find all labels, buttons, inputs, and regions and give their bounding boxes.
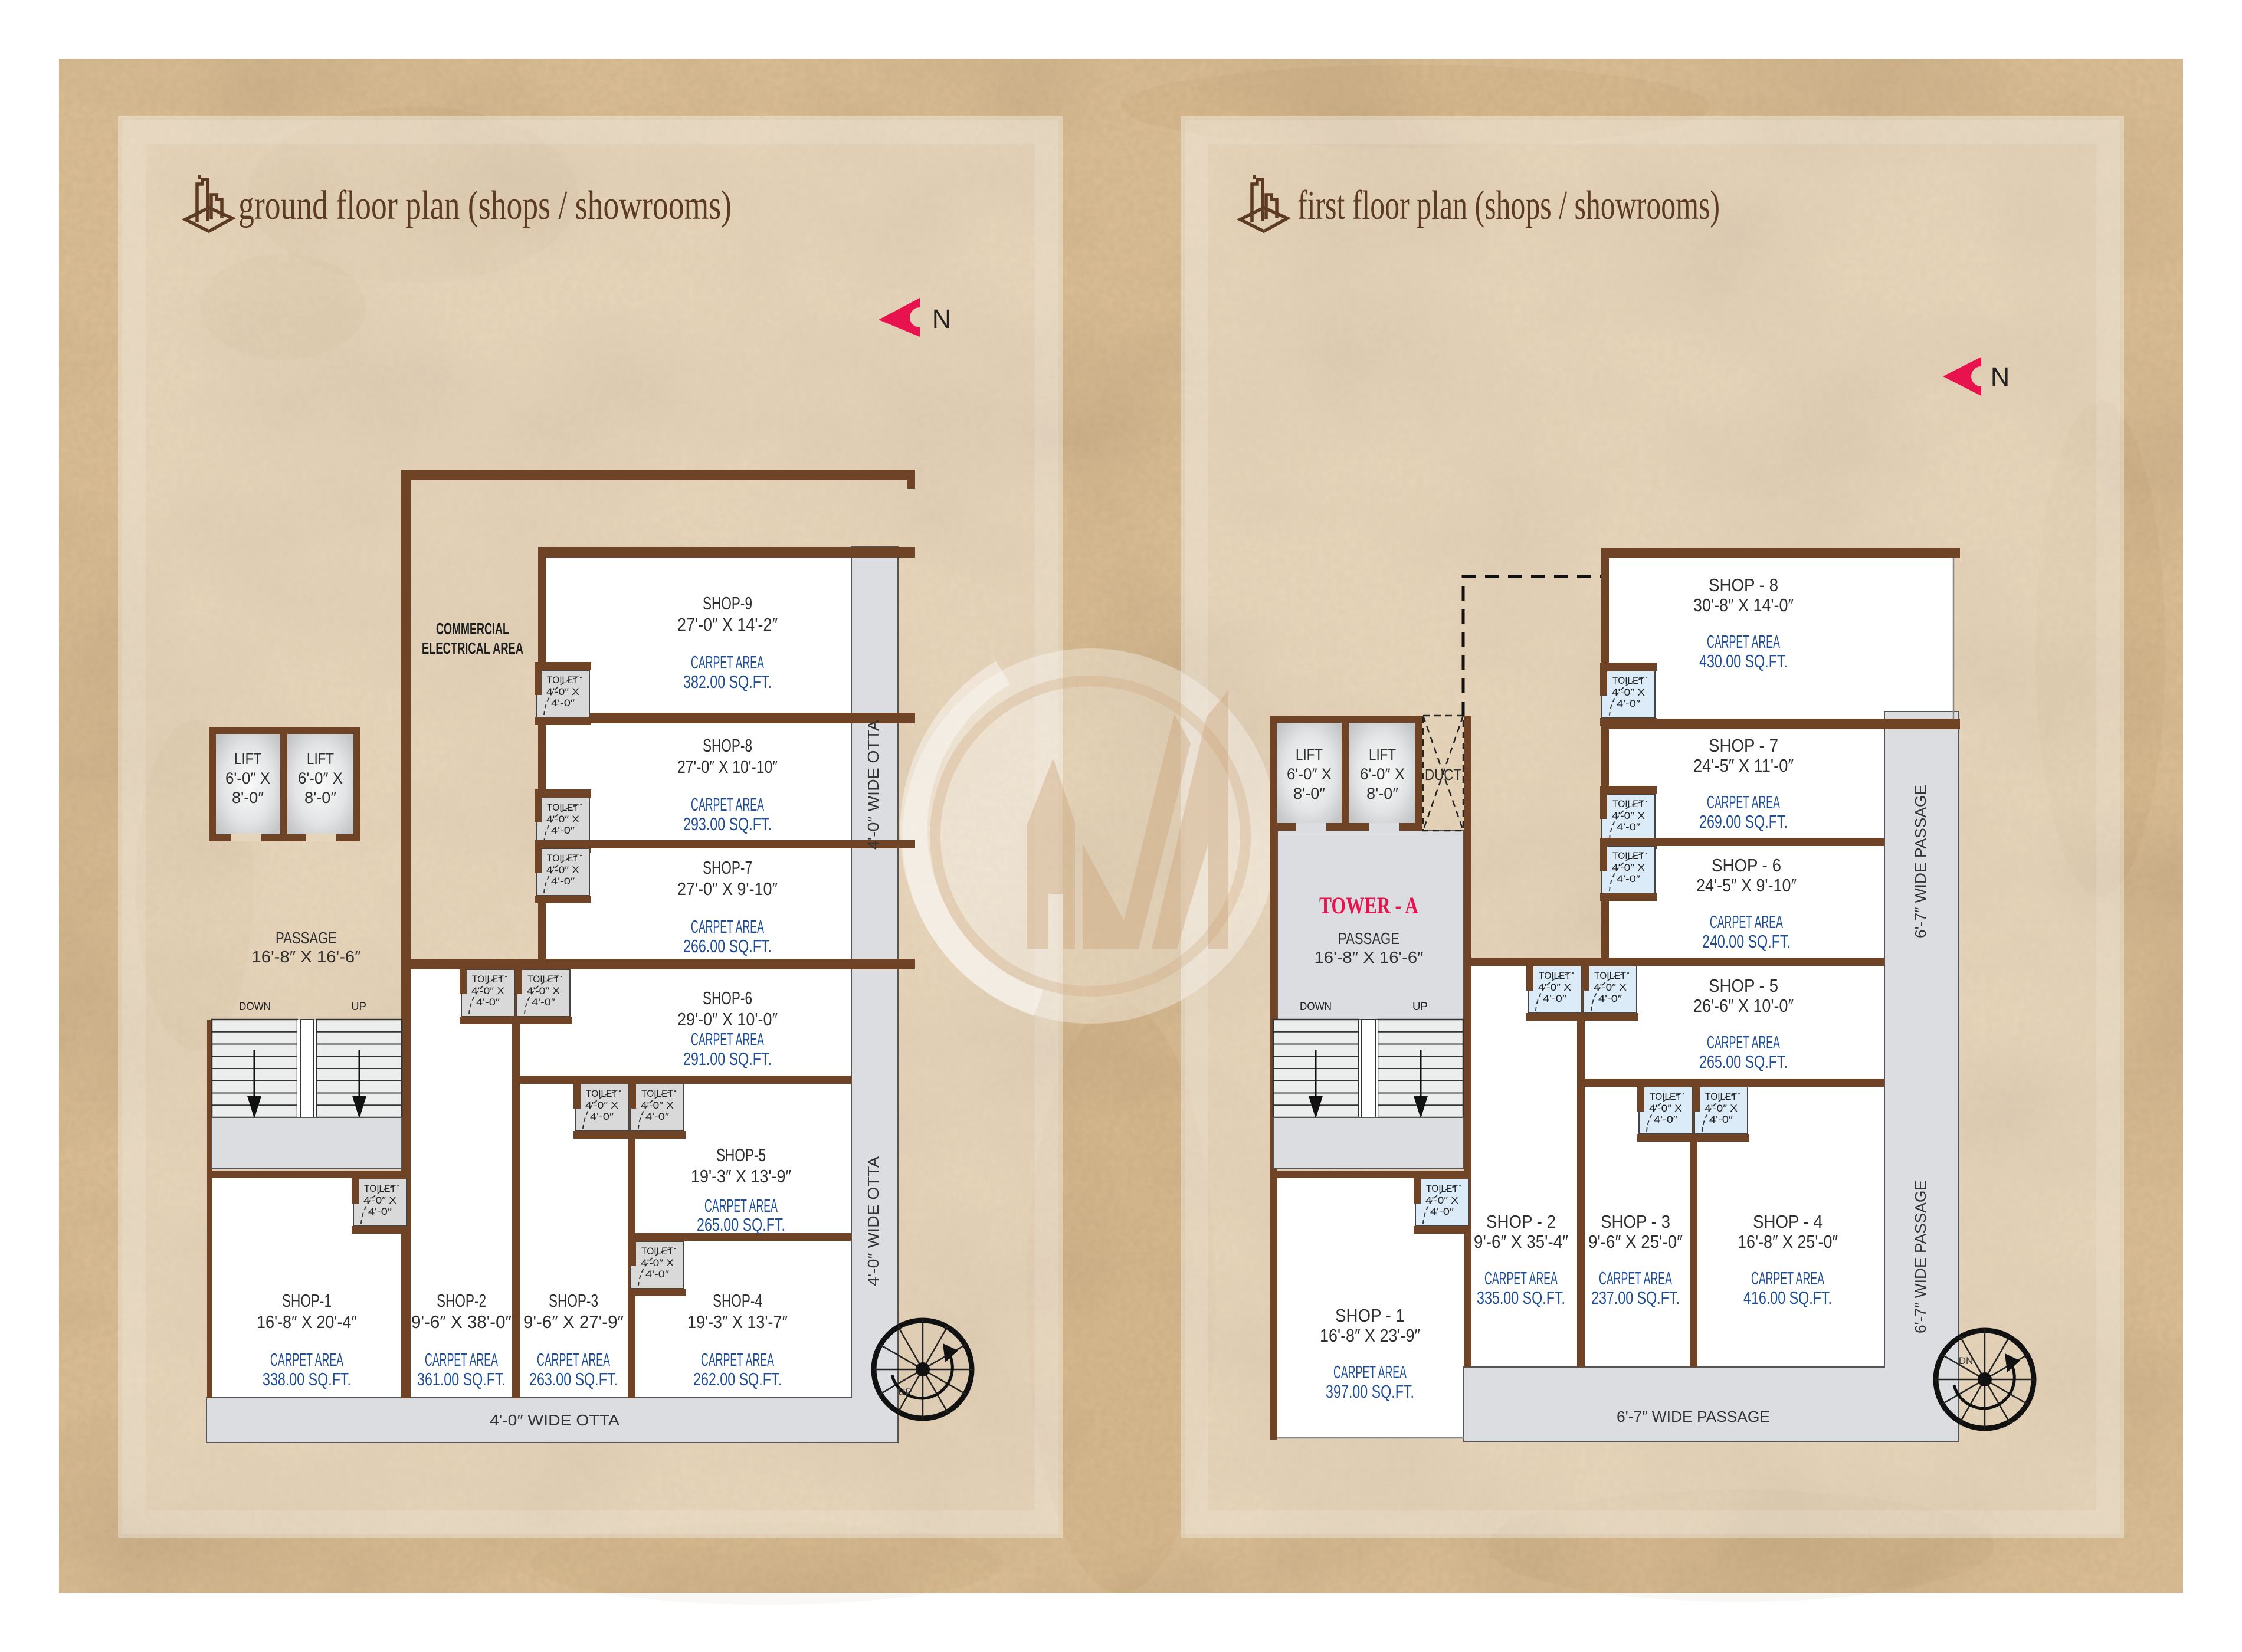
svg-text:SHOP - 5: SHOP - 5 <box>1709 975 1778 996</box>
svg-text:16'-8″ X 25'-0″: 16'-8″ X 25'-0″ <box>1738 1231 1838 1252</box>
svg-text:UP: UP <box>351 1001 366 1013</box>
svg-text:8'-0″: 8'-0″ <box>1293 785 1325 802</box>
svg-text:LIFT: LIFT <box>1296 746 1323 763</box>
svg-text:CARPET AREA: CARPET AREA <box>537 1349 610 1370</box>
svg-text:COMMERCIAL: COMMERCIAL <box>436 619 509 638</box>
svg-text:SHOP-4: SHOP-4 <box>713 1290 762 1311</box>
svg-text:SHOP - 7: SHOP - 7 <box>1709 735 1778 756</box>
svg-text:24'-5″ X 9'-10″: 24'-5″ X 9'-10″ <box>1696 875 1797 896</box>
svg-text:27'-0″ X 14'-2″: 27'-0″ X 14'-2″ <box>677 614 778 635</box>
svg-text:9'-6″ X 38'-0″: 9'-6″ X 38'-0″ <box>411 1312 512 1332</box>
svg-text:26'-6″ X 10'-0″: 26'-6″ X 10'-0″ <box>1693 995 1794 1016</box>
svg-text:361.00 SQ.FT.: 361.00 SQ.FT. <box>417 1369 506 1389</box>
svg-text:9'-6″ X 27'-9″: 9'-6″ X 27'-9″ <box>523 1312 624 1332</box>
svg-text:4'-0″ WIDE OTTA: 4'-0″ WIDE OTTA <box>864 1156 882 1286</box>
svg-text:SHOP-7: SHOP-7 <box>703 857 752 878</box>
svg-text:4'-0″ WIDE OTTA: 4'-0″ WIDE OTTA <box>490 1411 620 1429</box>
svg-text:SHOP-9: SHOP-9 <box>703 593 752 614</box>
svg-text:6'-0″ X: 6'-0″ X <box>1287 765 1332 783</box>
svg-text:269.00 SQ.FT.: 269.00 SQ.FT. <box>1699 811 1788 832</box>
svg-text:4'-0″ WIDE OTTA: 4'-0″ WIDE OTTA <box>864 719 882 850</box>
svg-text:9'-6″ X 35'-4″: 9'-6″ X 35'-4″ <box>1474 1231 1568 1252</box>
svg-text:16'-8″ X 16'-6″: 16'-8″ X 16'-6″ <box>1315 948 1424 966</box>
svg-text:CARPET AREA: CARPET AREA <box>1333 1362 1407 1382</box>
svg-text:27'-0″ X 9'-10″: 27'-0″ X 9'-10″ <box>677 879 778 899</box>
svg-text:LIFT: LIFT <box>234 750 261 768</box>
svg-text:382.00 SQ.FT.: 382.00 SQ.FT. <box>683 671 772 692</box>
svg-text:9'-6″ X 25'-0″: 9'-6″ X 25'-0″ <box>1588 1231 1683 1252</box>
svg-text:CARPET AREA: CARPET AREA <box>701 1349 774 1370</box>
svg-text:8'-0″: 8'-0″ <box>232 789 264 807</box>
svg-text:416.00 SQ.FT.: 416.00 SQ.FT. <box>1743 1287 1832 1308</box>
svg-text:UP: UP <box>1412 1001 1428 1013</box>
svg-text:SHOP - 1: SHOP - 1 <box>1335 1305 1405 1326</box>
svg-text:6'-7″ WIDE PASSAGE: 6'-7″ WIDE PASSAGE <box>1617 1408 1770 1425</box>
svg-text:16'-8″ X 20'-4″: 16'-8″ X 20'-4″ <box>257 1312 357 1332</box>
svg-text:29'-0″ X 10'-0″: 29'-0″ X 10'-0″ <box>677 1009 778 1030</box>
svg-text:24'-5″ X 11'-0″: 24'-5″ X 11'-0″ <box>1693 755 1794 776</box>
svg-text:397.00 SQ.FT.: 397.00 SQ.FT. <box>1326 1381 1414 1402</box>
svg-text:6'-7″ WIDE PASSAGE: 6'-7″ WIDE PASSAGE <box>1912 785 1929 938</box>
svg-text:6'-7″ WIDE PASSAGE: 6'-7″ WIDE PASSAGE <box>1912 1180 1929 1333</box>
svg-text:CARPET AREA: CARPET AREA <box>425 1349 498 1370</box>
svg-text:ground floor plan (shops / sho: ground floor plan (shops / showrooms) <box>238 183 732 228</box>
svg-text:CARPET AREA: CARPET AREA <box>1751 1268 1824 1289</box>
svg-text:CARPET AREA: CARPET AREA <box>1707 631 1780 652</box>
svg-text:19'-3″ X 13'-7″: 19'-3″ X 13'-7″ <box>687 1312 788 1332</box>
svg-text:237.00 SQ.FT.: 237.00 SQ.FT. <box>1591 1287 1680 1308</box>
svg-text:CARPET AREA: CARPET AREA <box>1707 1032 1780 1053</box>
svg-text:27'-0″ X 10'-10″: 27'-0″ X 10'-10″ <box>677 756 778 777</box>
svg-text:266.00 SQ.FT.: 266.00 SQ.FT. <box>683 936 772 956</box>
svg-text:DUCT: DUCT <box>1425 766 1461 784</box>
svg-text:TOWER - A: TOWER - A <box>1319 892 1418 919</box>
svg-text:30'-8″ X 14'-0″: 30'-8″ X 14'-0″ <box>1693 595 1794 615</box>
svg-text:N: N <box>932 304 952 334</box>
svg-text:SHOP - 6: SHOP - 6 <box>1712 855 1781 876</box>
svg-text:6'-0″ X: 6'-0″ X <box>225 769 270 787</box>
svg-text:CARPET AREA: CARPET AREA <box>1484 1268 1558 1289</box>
svg-text:DN: DN <box>1959 1355 1974 1366</box>
svg-text:CARPET AREA: CARPET AREA <box>704 1195 778 1216</box>
svg-text:SHOP-5: SHOP-5 <box>716 1145 766 1165</box>
svg-text:19'-3″ X 13'-9″: 19'-3″ X 13'-9″ <box>691 1166 791 1186</box>
svg-text:SHOP-6: SHOP-6 <box>703 988 752 1008</box>
svg-text:265.00 SQ.FT.: 265.00 SQ.FT. <box>697 1214 785 1235</box>
svg-text:CARPET AREA: CARPET AREA <box>270 1349 343 1370</box>
svg-text:240.00 SQ.FT.: 240.00 SQ.FT. <box>1702 931 1791 952</box>
svg-text:CARPET AREA: CARPET AREA <box>691 794 764 815</box>
svg-text:16'-8″ X 23'-9″: 16'-8″ X 23'-9″ <box>1320 1325 1420 1346</box>
svg-text:first floor plan (shops / show: first floor plan (shops / showrooms) <box>1297 183 1720 228</box>
svg-text:SHOP - 2: SHOP - 2 <box>1486 1211 1556 1232</box>
svg-text:N: N <box>1991 362 2010 392</box>
svg-text:CARPET AREA: CARPET AREA <box>691 652 764 673</box>
svg-text:CARPET AREA: CARPET AREA <box>691 916 764 937</box>
svg-text:6'-0″ X: 6'-0″ X <box>1360 765 1405 783</box>
svg-text:265.00 SQ.FT.: 265.00 SQ.FT. <box>1699 1051 1788 1072</box>
svg-text:291.00 SQ.FT.: 291.00 SQ.FT. <box>683 1048 772 1069</box>
svg-text:SHOP - 4: SHOP - 4 <box>1753 1211 1823 1232</box>
svg-text:8'-0″: 8'-0″ <box>1366 785 1398 802</box>
svg-text:338.00 SQ.FT.: 338.00 SQ.FT. <box>263 1369 351 1389</box>
svg-text:8'-0″: 8'-0″ <box>304 789 336 807</box>
svg-text:SHOP-3: SHOP-3 <box>549 1290 598 1311</box>
svg-text:LIFT: LIFT <box>307 750 334 768</box>
svg-text:SHOP-8: SHOP-8 <box>703 735 752 756</box>
svg-text:335.00 SQ.FT.: 335.00 SQ.FT. <box>1477 1287 1565 1308</box>
svg-text:PASSAGE: PASSAGE <box>276 929 337 947</box>
svg-text:SHOP-1: SHOP-1 <box>282 1290 332 1311</box>
svg-text:CARPET AREA: CARPET AREA <box>691 1029 764 1050</box>
svg-text:SHOP - 3: SHOP - 3 <box>1601 1211 1670 1232</box>
svg-text:262.00 SQ.FT.: 262.00 SQ.FT. <box>693 1369 782 1389</box>
svg-text:LIFT: LIFT <box>1369 746 1396 763</box>
svg-text:16'-8″ X 16'-6″: 16'-8″ X 16'-6″ <box>252 948 361 966</box>
svg-text:263.00 SQ.FT.: 263.00 SQ.FT. <box>529 1369 618 1389</box>
svg-text:CARPET AREA: CARPET AREA <box>1707 792 1780 812</box>
svg-text:430.00 SQ.FT.: 430.00 SQ.FT. <box>1699 651 1788 671</box>
svg-text:CARPET AREA: CARPET AREA <box>1710 912 1783 932</box>
svg-text:SHOP - 8: SHOP - 8 <box>1709 575 1778 595</box>
svg-text:ELECTRICAL AREA: ELECTRICAL AREA <box>422 639 523 657</box>
svg-text:PASSAGE: PASSAGE <box>1338 929 1399 948</box>
svg-text:293.00 SQ.FT.: 293.00 SQ.FT. <box>683 814 772 834</box>
svg-text:CARPET AREA: CARPET AREA <box>1599 1268 1672 1289</box>
svg-text:DOWN: DOWN <box>239 1001 271 1013</box>
svg-text:UP: UP <box>898 1386 912 1398</box>
svg-text:DOWN: DOWN <box>1300 1001 1332 1013</box>
svg-text:SHOP-2: SHOP-2 <box>437 1290 486 1311</box>
svg-text:6'-0″ X: 6'-0″ X <box>298 769 343 787</box>
